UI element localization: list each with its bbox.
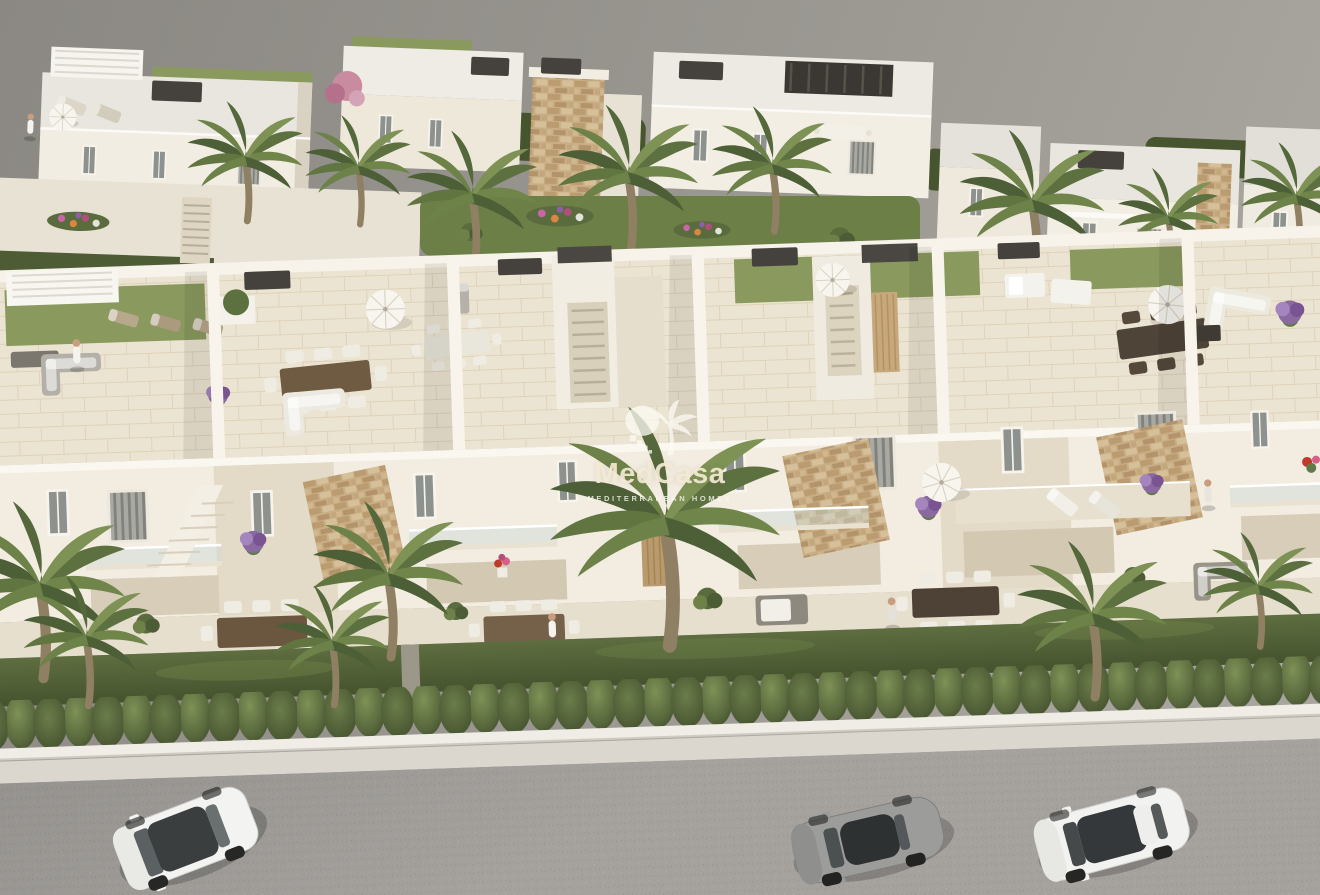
scene-canvas (0, 0, 1320, 895)
garden-path (401, 644, 421, 693)
render-root: MedCasa MEDITERRANEAN HOMES (0, 0, 1320, 895)
balcony (1230, 483, 1320, 507)
daybed (755, 594, 808, 626)
